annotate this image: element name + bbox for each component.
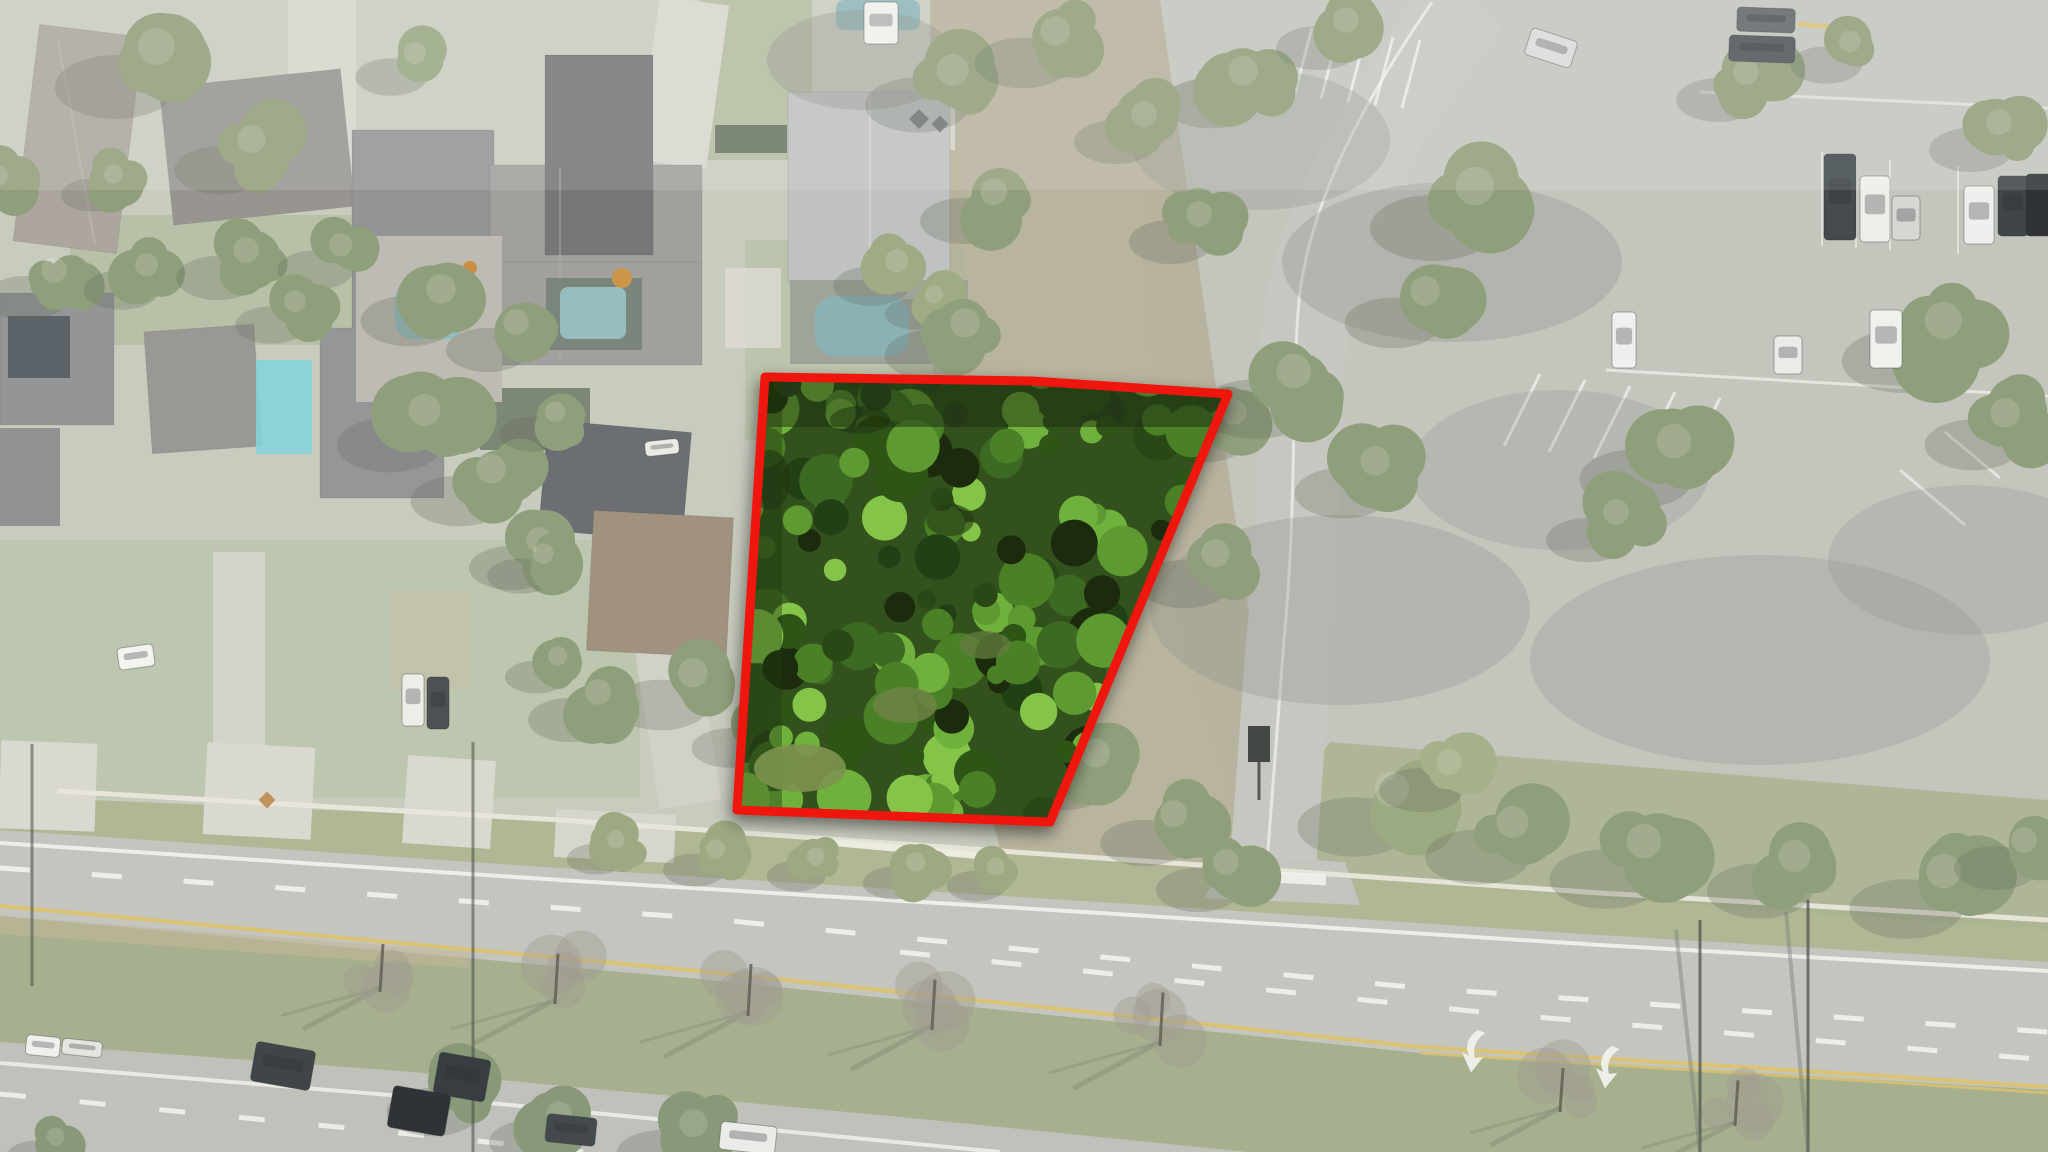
parcel-tree [1051, 520, 1098, 567]
parcel-shadow-gap [830, 406, 890, 434]
parcel-shadow-gap [926, 504, 974, 536]
parcel-tree [824, 559, 846, 581]
parcel-tree [885, 592, 915, 622]
parcel-tree [900, 744, 924, 768]
parcel-clearing [873, 687, 937, 723]
parcel-tree [792, 688, 826, 722]
parcel-tree [997, 535, 1026, 564]
parcel-tree [915, 534, 961, 580]
parcel-tree [1039, 435, 1060, 456]
parcel-tree [940, 448, 980, 488]
parcel-tree [839, 448, 869, 478]
parcel-clearing [754, 744, 846, 792]
parcel-tree [1084, 575, 1120, 611]
parcel-tree [1097, 526, 1148, 577]
parcel-tree [973, 583, 997, 607]
parcel-tree [813, 499, 849, 535]
parcel-tree [959, 771, 996, 808]
parcel-tree [990, 429, 1025, 464]
parcel-tree [1020, 693, 1057, 730]
parcel-tree [1053, 672, 1097, 716]
aerial-photo [0, 0, 2048, 1152]
parcel-tree [918, 590, 937, 609]
parcel-tree [822, 629, 854, 661]
parcel-tree [783, 505, 813, 535]
parcel-clearing [959, 631, 1011, 659]
parcel-tree [886, 419, 939, 472]
parcel-tree [922, 609, 953, 640]
parcel-tree [878, 546, 901, 569]
